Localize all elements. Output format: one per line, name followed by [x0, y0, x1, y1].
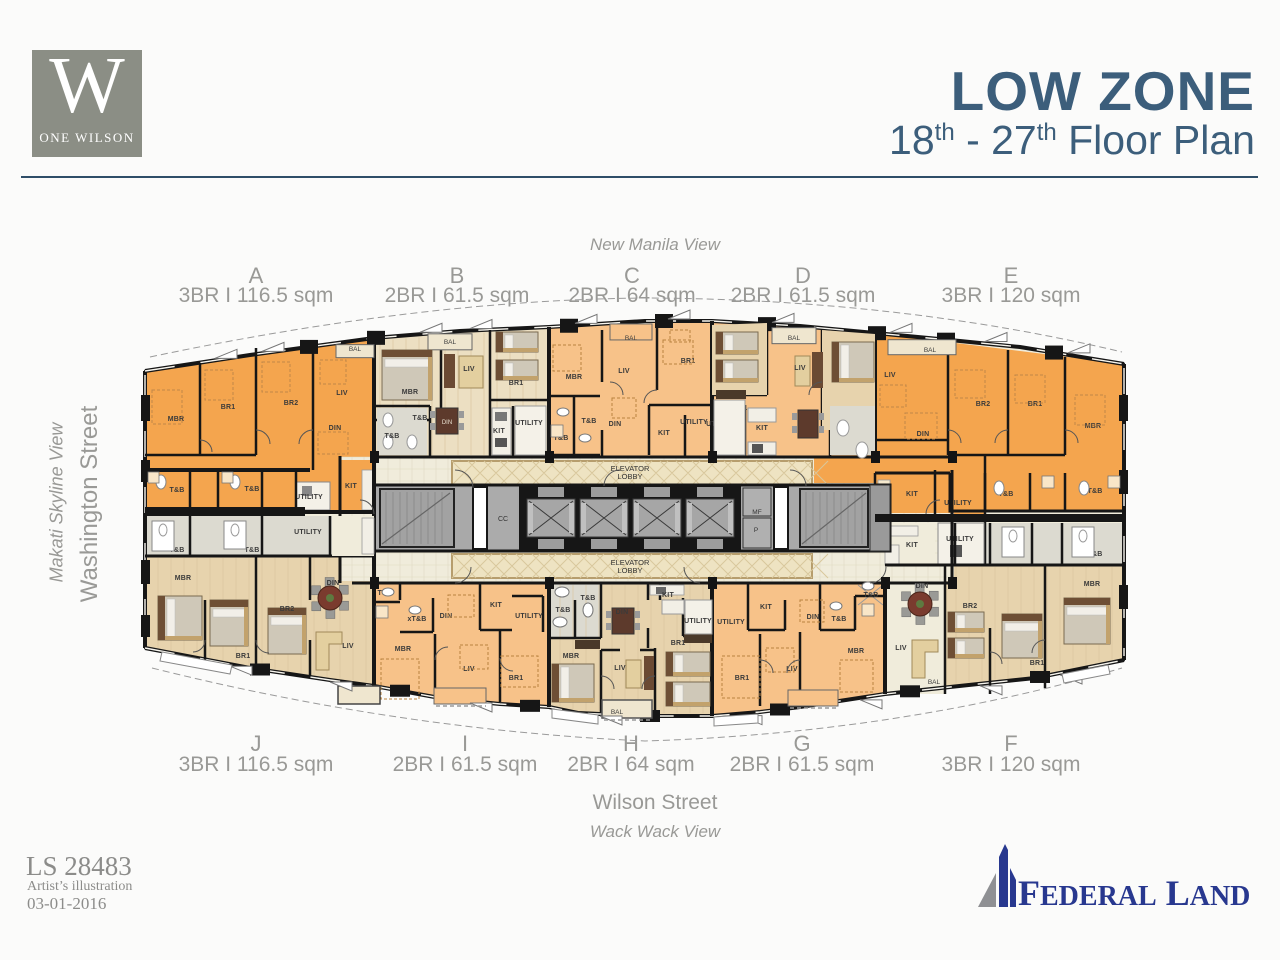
svg-text:LIV: LIV: [342, 643, 354, 650]
svg-text:T&B: T&B: [170, 487, 185, 494]
svg-text:DIN: DIN: [442, 420, 452, 426]
svg-text:BR2: BR2: [963, 603, 978, 610]
svg-text:DIN: DIN: [916, 583, 929, 590]
svg-text:LIV: LIV: [895, 645, 907, 652]
svg-text:UTILITY: UTILITY: [294, 529, 322, 536]
svg-text:DIN: DIN: [327, 580, 340, 587]
svg-text:BAL: BAL: [924, 347, 937, 354]
svg-text:MBR: MBR: [402, 389, 419, 396]
svg-text:KIT: KIT: [493, 428, 505, 435]
svg-text:BR2: BR2: [976, 401, 991, 408]
svg-text:KIT: KIT: [756, 425, 768, 432]
svg-text:MBR: MBR: [848, 648, 865, 655]
svg-text:DIN: DIN: [616, 609, 629, 616]
svg-text:T&B: T&B: [582, 418, 597, 425]
svg-text:KIT: KIT: [345, 483, 357, 490]
svg-text:MBR: MBR: [1085, 423, 1102, 430]
svg-text:DIN: DIN: [609, 421, 622, 428]
svg-text:T&B: T&B: [245, 547, 260, 554]
svg-text:DIN: DIN: [329, 425, 342, 432]
svg-text:MBR: MBR: [563, 653, 580, 660]
svg-text:T&B: T&B: [556, 607, 571, 614]
svg-text:UTILITY: UTILITY: [944, 500, 972, 507]
svg-text:BAL: BAL: [349, 346, 362, 353]
svg-text:UTILITY: UTILITY: [515, 613, 543, 620]
svg-text:BR1: BR1: [509, 675, 524, 682]
svg-text:MF: MF: [752, 509, 761, 516]
svg-text:LIV: LIV: [614, 665, 626, 672]
svg-text:T&B: T&B: [832, 616, 847, 623]
svg-text:KIT: KIT: [906, 542, 918, 549]
svg-text:BAL: BAL: [928, 679, 941, 686]
svg-text:BR1: BR1: [221, 404, 236, 411]
svg-text:BR1: BR1: [236, 653, 251, 660]
svg-text:KIT: KIT: [490, 602, 502, 609]
svg-text:BAL: BAL: [788, 335, 801, 342]
svg-text:BR1: BR1: [1028, 401, 1043, 408]
svg-text:MBR: MBR: [1084, 581, 1101, 588]
svg-text:T&B: T&B: [864, 592, 879, 599]
svg-text:T&B: T&B: [245, 486, 260, 493]
svg-text:LOBBY: LOBBY: [617, 472, 642, 481]
svg-text:LIV: LIV: [463, 366, 475, 373]
svg-text:P: P: [754, 527, 758, 534]
svg-text:T&B: T&B: [413, 415, 428, 422]
svg-text:BAL: BAL: [444, 339, 457, 346]
svg-text:BR1: BR1: [671, 640, 686, 647]
svg-text:BR2: BR2: [280, 606, 295, 613]
svg-text:xT&B: xT&B: [407, 616, 426, 623]
svg-text:UTILITY: UTILITY: [295, 494, 323, 501]
svg-text:BR2: BR2: [284, 400, 299, 407]
svg-text:BR1: BR1: [509, 380, 524, 387]
svg-text:KIT: KIT: [662, 592, 674, 599]
svg-text:MBR: MBR: [395, 646, 412, 653]
svg-text:CC: CC: [498, 516, 508, 523]
svg-text:KIT: KIT: [658, 430, 670, 437]
svg-text:LIV: LIV: [794, 365, 806, 372]
svg-text:DIN: DIN: [917, 431, 930, 438]
svg-text:BR1: BR1: [1030, 660, 1045, 667]
svg-text:UTILITY: UTILITY: [515, 420, 543, 427]
svg-text:LIV: LIV: [884, 372, 896, 379]
svg-text:LIV: LIV: [336, 390, 348, 397]
svg-text:KIT: KIT: [760, 604, 772, 611]
svg-text:BAL: BAL: [611, 709, 624, 716]
svg-text:LOBBY: LOBBY: [617, 566, 642, 575]
svg-text:UTILITY: UTILITY: [717, 619, 745, 626]
svg-text:T&B: T&B: [581, 595, 596, 602]
svg-text:T&B: T&B: [385, 433, 400, 440]
svg-text:UTILITY: UTILITY: [680, 419, 708, 426]
svg-text:T&B: T&B: [1088, 488, 1103, 495]
svg-text:BR1: BR1: [735, 675, 750, 682]
svg-text:LIV: LIV: [618, 368, 630, 375]
svg-text:KIT: KIT: [906, 491, 918, 498]
svg-text:UTILITY: UTILITY: [946, 536, 974, 543]
svg-text:BAL: BAL: [625, 335, 638, 342]
svg-text:MBR: MBR: [566, 374, 583, 381]
svg-text:MBR: MBR: [175, 575, 192, 582]
svg-text:UTILITY: UTILITY: [684, 618, 712, 625]
svg-text:DIN: DIN: [807, 614, 820, 621]
